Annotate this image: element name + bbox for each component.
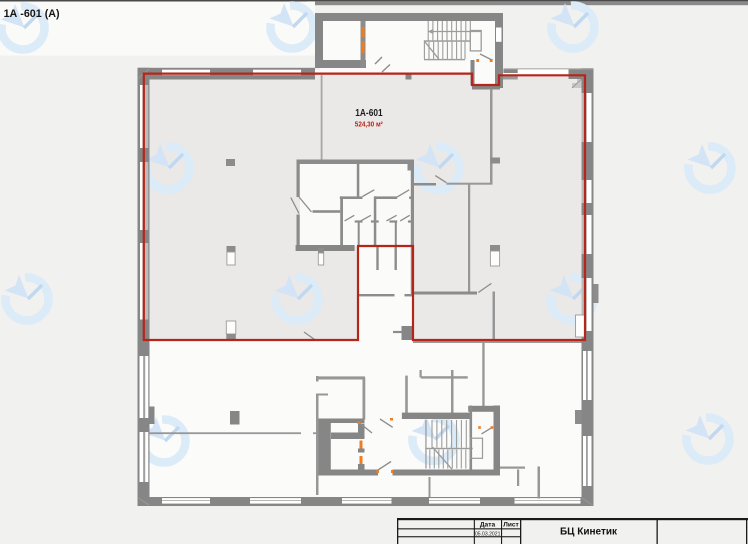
svg-text:1А -601 (А): 1А -601 (А) (4, 8, 60, 20)
svg-text:БЦ Кинетик: БЦ Кинетик (560, 527, 618, 538)
svg-text:524,30 м²: 524,30 м² (355, 119, 383, 128)
svg-text:05.03.2021: 05.03.2021 (475, 531, 501, 537)
svg-text:Лист: Лист (503, 521, 519, 528)
svg-text:1А-601: 1А-601 (355, 107, 382, 119)
svg-text:Дата: Дата (480, 521, 496, 528)
